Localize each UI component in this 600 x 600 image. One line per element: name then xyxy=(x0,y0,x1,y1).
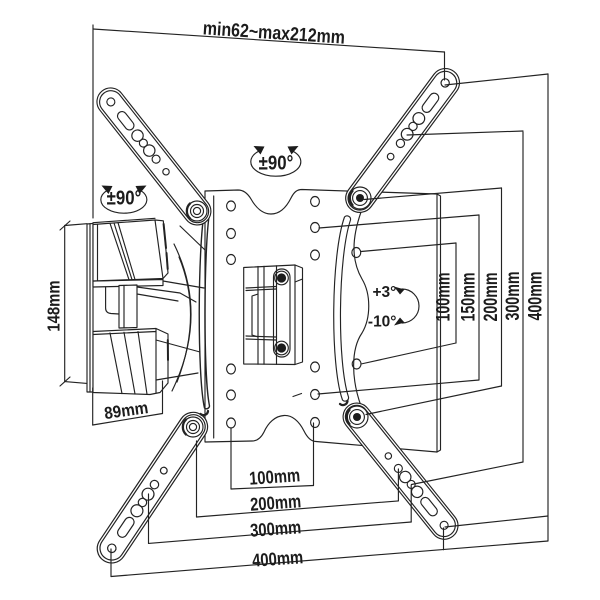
svg-text:±90°: ±90° xyxy=(259,151,294,174)
svg-text:100mm: 100mm xyxy=(248,465,300,489)
svg-text:100mm: 100mm xyxy=(433,272,454,321)
svg-text:150mm: 150mm xyxy=(457,272,478,321)
svg-text:300mm: 300mm xyxy=(502,271,523,320)
svg-text:±90°: ±90° xyxy=(107,186,142,209)
svg-text:400mm: 400mm xyxy=(251,547,303,571)
svg-text:89mm: 89mm xyxy=(103,398,149,423)
svg-text:300mm: 300mm xyxy=(249,517,301,541)
svg-text:+3°: +3° xyxy=(372,284,396,301)
svg-text:-10°: -10° xyxy=(368,313,397,330)
svg-text:400mm: 400mm xyxy=(525,271,546,320)
svg-text:200mm: 200mm xyxy=(480,272,501,321)
svg-text:min62~max212mm: min62~max212mm xyxy=(202,17,345,48)
svg-text:148mm: 148mm xyxy=(44,280,63,331)
svg-text:200mm: 200mm xyxy=(249,491,301,515)
